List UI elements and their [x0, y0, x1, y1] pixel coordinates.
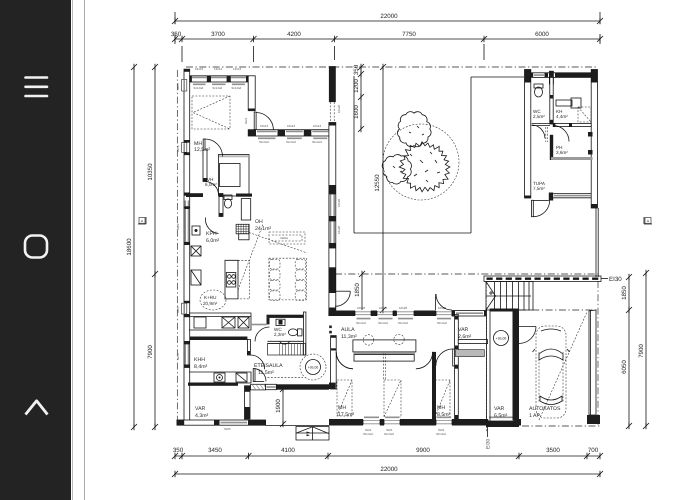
svg-text:4200: 4200: [287, 31, 301, 38]
svg-text:AULA: AULA: [341, 327, 355, 333]
svg-text:12x13: 12x13: [233, 67, 242, 71]
svg-text:12x13: 12x13: [195, 67, 204, 71]
svg-text:8,4m²: 8,4m²: [194, 364, 208, 370]
svg-text:17,5m²: 17,5m²: [338, 412, 354, 418]
svg-text:2,5m²: 2,5m²: [533, 114, 545, 119]
svg-text:12,5m²: 12,5m²: [194, 147, 210, 153]
svg-text:2,3m²: 2,3m²: [274, 332, 286, 337]
svg-text:KPH: KPH: [206, 231, 217, 237]
svg-text:6000: 6000: [535, 31, 549, 38]
svg-text:MH: MH: [338, 405, 346, 411]
svg-text:9x05: 9x05: [176, 83, 180, 90]
svg-text:EI30: EI30: [486, 438, 492, 449]
svg-text:+95,00: +95,00: [496, 337, 507, 341]
svg-text:VAR: VAR: [494, 406, 505, 412]
svg-text:VAR: VAR: [458, 327, 469, 333]
svg-text:9x14sd: 9x14sd: [213, 86, 223, 90]
svg-text:KHH: KHH: [194, 357, 205, 363]
svg-text:9x14sd: 9x14sd: [356, 321, 366, 325]
svg-text:OH: OH: [255, 219, 263, 225]
svg-text:EI30: EI30: [609, 276, 622, 283]
svg-text:ETEISAULA: ETEISAULA: [254, 363, 283, 369]
svg-text:12550: 12550: [374, 174, 381, 192]
svg-text:9x14sd: 9x14sd: [259, 140, 269, 144]
svg-text:3450: 3450: [208, 447, 222, 454]
svg-text:7750: 7750: [402, 31, 416, 38]
svg-text:A: A: [647, 219, 650, 224]
svg-text:1900: 1900: [275, 399, 282, 413]
svg-text:6,0m²: 6,0m²: [206, 238, 220, 244]
svg-text:9x14sd: 9x14sd: [194, 86, 204, 90]
svg-text:7900: 7900: [147, 345, 154, 359]
svg-text:20,9m²: 20,9m²: [203, 301, 218, 306]
svg-text:10x20: 10x20: [337, 104, 341, 113]
svg-text:9x14sd: 9x14sd: [378, 321, 388, 325]
svg-text:11,3m²: 11,3m²: [341, 334, 357, 340]
svg-text:700: 700: [588, 447, 599, 454]
svg-text:9x13: 9x13: [176, 353, 180, 360]
svg-text:3,6m²: 3,6m²: [556, 150, 568, 155]
svg-text:9x21: 9x21: [244, 117, 248, 124]
svg-text:18600: 18600: [126, 238, 133, 256]
svg-text:10x13: 10x13: [313, 124, 322, 128]
svg-text:1850: 1850: [354, 283, 361, 297]
svg-text:+95,00: +95,00: [308, 366, 319, 370]
svg-text:9x14sd: 9x14sd: [398, 321, 408, 325]
svg-text:9x05: 9x05: [176, 306, 180, 313]
svg-text:1850: 1850: [621, 286, 628, 300]
svg-text:Takka: Takka: [280, 236, 288, 240]
svg-text:6050: 6050: [621, 360, 628, 374]
svg-text:10x13: 10x13: [287, 124, 296, 128]
svg-text:9x14sd: 9x14sd: [437, 321, 447, 325]
svg-text:9x21: 9x21: [176, 223, 180, 230]
svg-text:VAR: VAR: [195, 406, 206, 412]
svg-text:3700: 3700: [211, 31, 225, 38]
svg-text:9x05: 9x05: [176, 145, 180, 152]
svg-text:1 AP: 1 AP: [529, 413, 540, 419]
svg-text:10x23: 10x23: [379, 306, 388, 310]
svg-text:K+RU: K+RU: [204, 295, 216, 300]
svg-text:22000: 22000: [380, 466, 398, 473]
svg-text:10x20: 10x20: [337, 198, 341, 207]
svg-text:A: A: [141, 219, 144, 224]
svg-text:9x05: 9x05: [224, 427, 231, 431]
svg-text:10x13: 10x13: [260, 124, 269, 128]
svg-text:9x14sd: 9x14sd: [312, 140, 322, 144]
svg-text:9x14sd: 9x14sd: [384, 432, 394, 436]
svg-text:350: 350: [353, 64, 360, 75]
svg-text:9x14sd: 9x14sd: [363, 432, 373, 436]
svg-text:10350: 10350: [147, 163, 154, 181]
svg-text:10x23: 10x23: [399, 306, 408, 310]
svg-text:9x14sd: 9x14sd: [436, 432, 446, 436]
svg-text:MH: MH: [437, 405, 445, 411]
svg-text:12x13: 12x13: [214, 67, 223, 71]
svg-text:7,5m²: 7,5m²: [533, 186, 545, 191]
svg-text:9x14sd: 9x14sd: [286, 140, 296, 144]
svg-text:10x20: 10x20: [337, 225, 341, 234]
svg-text:7900: 7900: [638, 344, 645, 358]
svg-text:9x14sd: 9x14sd: [232, 86, 242, 90]
svg-text:350: 350: [173, 447, 184, 454]
svg-text:4,3m²: 4,3m²: [195, 413, 209, 419]
svg-text:9900: 9900: [416, 447, 430, 454]
svg-text:4100: 4100: [281, 447, 295, 454]
svg-text:3500: 3500: [546, 447, 560, 454]
svg-text:6,5m²: 6,5m²: [494, 413, 508, 419]
svg-text:2,6m²: 2,6m²: [458, 334, 472, 340]
svg-text:10x23: 10x23: [357, 306, 366, 310]
svg-text:22000: 22000: [380, 13, 398, 20]
svg-text:350: 350: [171, 31, 182, 38]
svg-text:4,4m²: 4,4m²: [556, 114, 568, 119]
svg-text:24,1m²: 24,1m²: [255, 226, 271, 232]
